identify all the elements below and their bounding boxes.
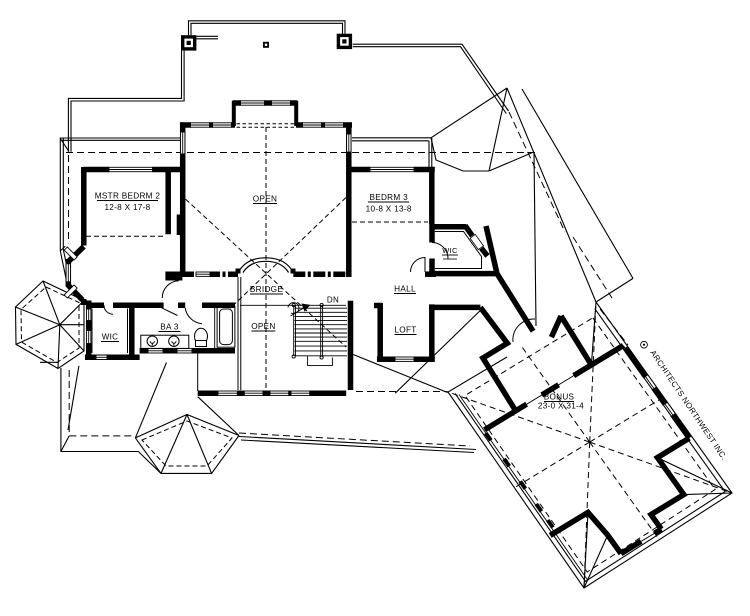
svg-text:10-8 X 13-8: 10-8 X 13-8 [366, 205, 412, 214]
svg-text:WIC: WIC [102, 333, 118, 342]
svg-text:WIC: WIC [442, 246, 458, 255]
svg-text:23-0 X 31-4: 23-0 X 31-4 [538, 402, 584, 411]
svg-text:LOFT: LOFT [394, 326, 416, 335]
svg-text:12-8 X 17-8: 12-8 X 17-8 [104, 203, 150, 212]
svg-text:OPEN: OPEN [251, 322, 275, 331]
svg-text:BA 3: BA 3 [160, 323, 179, 332]
svg-text:DN: DN [327, 296, 339, 305]
svg-text:BEDRM 3: BEDRM 3 [369, 193, 408, 202]
svg-text:HALL: HALL [394, 285, 416, 294]
svg-text:OPEN: OPEN [253, 195, 277, 204]
svg-text:MSTR BEDRM 2: MSTR BEDRM 2 [95, 192, 161, 201]
svg-text:BONUS: BONUS [544, 393, 575, 402]
svg-text:BRIDGE: BRIDGE [250, 285, 283, 294]
